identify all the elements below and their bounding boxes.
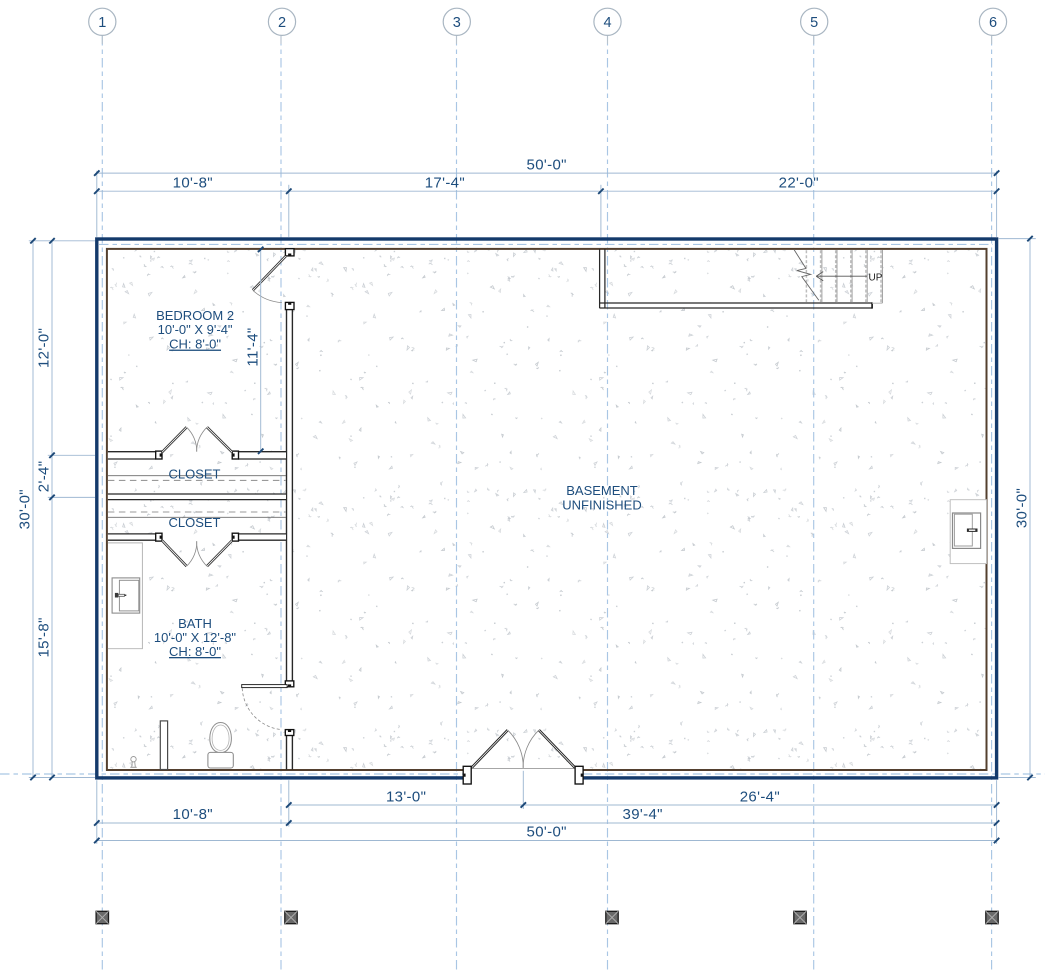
svg-text:10'-0" X 9'-4": 10'-0" X 9'-4" [158, 322, 233, 337]
svg-text:CLOSET: CLOSET [168, 466, 220, 481]
svg-text:BEDROOM 2: BEDROOM 2 [156, 308, 234, 323]
svg-text:6: 6 [989, 15, 997, 31]
svg-text:10'-0" X 12'-8": 10'-0" X 12'-8" [154, 630, 237, 645]
svg-text:5: 5 [810, 15, 818, 31]
svg-text:UP: UP [869, 272, 883, 283]
svg-text:22'-0": 22'-0" [779, 174, 819, 191]
svg-text:12'-0": 12'-0" [36, 328, 53, 368]
svg-text:30'-0": 30'-0" [1014, 488, 1031, 528]
svg-text:30'-0": 30'-0" [17, 489, 34, 529]
svg-text:CH: 8'-0": CH: 8'-0" [169, 337, 221, 352]
svg-text:15'-8": 15'-8" [36, 617, 53, 657]
svg-text:10'-8": 10'-8" [173, 174, 213, 191]
svg-text:26'-4": 26'-4" [740, 788, 780, 805]
svg-text:4: 4 [603, 15, 611, 31]
svg-text:CLOSET: CLOSET [168, 515, 220, 530]
svg-text:17'-4": 17'-4" [425, 174, 465, 191]
svg-text:2'-4": 2'-4" [36, 461, 53, 493]
svg-text:11'-4": 11'-4" [244, 327, 261, 366]
svg-text:BASEMENT: BASEMENT [566, 483, 638, 498]
svg-text:10'-8": 10'-8" [173, 806, 213, 823]
svg-text:2: 2 [278, 15, 286, 31]
svg-text:BATH: BATH [178, 616, 212, 631]
svg-text:13'-0": 13'-0" [386, 788, 426, 805]
svg-text:CH: 8'-0": CH: 8'-0" [169, 644, 221, 659]
svg-text:3: 3 [453, 15, 461, 31]
svg-text:1: 1 [98, 15, 106, 31]
svg-text:UNFINISHED: UNFINISHED [562, 498, 641, 513]
svg-text:50'-0": 50'-0" [527, 824, 567, 841]
svg-text:50'-0": 50'-0" [527, 156, 567, 173]
svg-text:39'-4": 39'-4" [623, 806, 663, 823]
